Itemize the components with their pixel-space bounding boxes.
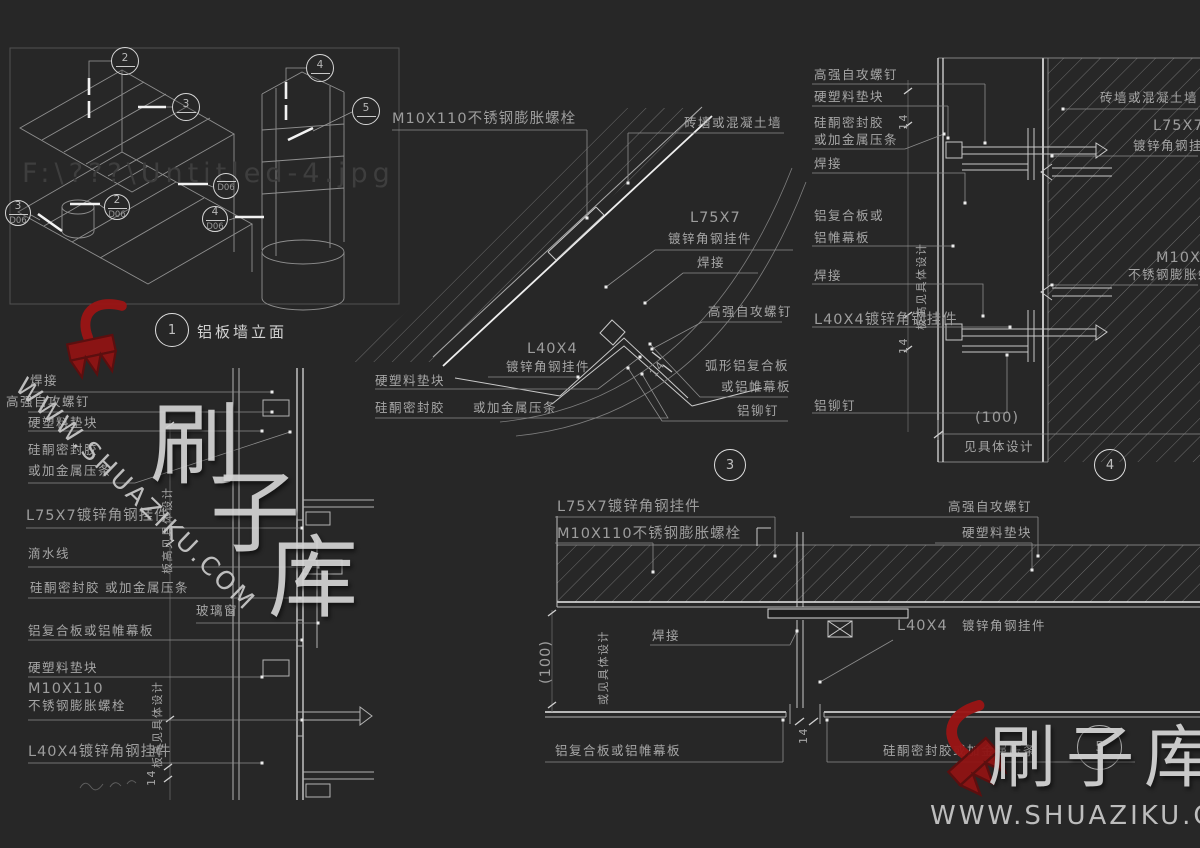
cad-label: 硅酮密封胶 bbox=[375, 401, 445, 415]
cad-label: L40X4 bbox=[897, 618, 948, 635]
cad-label: 硬塑料垫块 bbox=[28, 661, 98, 675]
cad-label: 焊接 bbox=[652, 629, 680, 643]
bubble-sheet: D06 bbox=[217, 184, 234, 193]
cad-label: 硬塑料垫块 bbox=[814, 90, 884, 104]
cad-label: 铝复合板或 bbox=[814, 209, 884, 223]
cad-label: 高强自攻螺钉 bbox=[948, 500, 1032, 514]
watermark-site-text: WWW.SHUAZIKU.COM bbox=[930, 801, 1200, 831]
ghost-filepath-text: F:\???\Untitled-4.jpg bbox=[22, 158, 395, 189]
detail-number: 4 bbox=[1106, 458, 1114, 473]
bubble-number: 5 bbox=[357, 103, 376, 117]
cad-label: L40X4 bbox=[527, 341, 578, 358]
bubble-number bbox=[217, 179, 236, 182]
detail-bubble-3-d06: 3D06 bbox=[5, 200, 31, 226]
detail-number-circle-3: 3 bbox=[714, 449, 746, 481]
cad-label: 或加金属压条 bbox=[814, 133, 898, 147]
cad-label: M10X110不锈钢膨胀螺栓 bbox=[392, 111, 576, 128]
bubble-number: 4 bbox=[311, 60, 330, 74]
cad-dim-text: (100) bbox=[975, 410, 1019, 427]
wall-hatch bbox=[352, 108, 708, 362]
elevation-number-circle: 1 bbox=[155, 313, 189, 347]
cad-label: L75X7 bbox=[690, 210, 741, 227]
cad-label: 见具体设计 bbox=[964, 440, 1034, 454]
bubble-number: 3 bbox=[9, 201, 28, 215]
leader-dots bbox=[261, 108, 1065, 765]
cad-label: 或加金属压条 bbox=[473, 401, 557, 415]
cad-dim-text: 或见具体设计 bbox=[598, 630, 611, 705]
cad-label: 镀锌角钢挂件 bbox=[1133, 139, 1200, 153]
cad-label: 高强自攻螺钉 bbox=[708, 305, 792, 319]
detail-number: 3 bbox=[726, 458, 734, 473]
cad-label: L75X7 bbox=[1153, 118, 1200, 135]
cad-label: 焊接 bbox=[814, 157, 842, 171]
detail-bubble-4: 4 bbox=[306, 54, 334, 82]
cad-label: 铝帷幕板 bbox=[814, 231, 870, 245]
cad-label: M10X110不锈钢膨胀螺栓 bbox=[557, 526, 741, 543]
cad-label: L40X4镀锌角钢挂件 bbox=[814, 312, 958, 329]
bubble-sheet: D06 bbox=[108, 211, 125, 220]
hanger-plate bbox=[768, 609, 908, 618]
cad-label: 硅酮密封胶 bbox=[30, 581, 100, 595]
cad-dim-text: 14 bbox=[798, 727, 811, 744]
cad-label: 高强自攻螺钉 bbox=[814, 68, 898, 82]
cad-dim-text: 板高见具体设计 bbox=[152, 681, 165, 769]
watermark-brand-text: 刷子库 bbox=[988, 702, 1200, 801]
cad-label: 镀锌角钢挂件 bbox=[506, 360, 590, 374]
cad-label: M10X110 bbox=[1156, 250, 1200, 267]
cad-label: 镀锌角钢挂件 bbox=[962, 619, 1046, 633]
cad-dim-text: 14 bbox=[898, 113, 911, 130]
bubble-sheet: D06 bbox=[206, 223, 223, 232]
cad-dim-text: 14 bbox=[146, 769, 159, 786]
cad-label: 不锈钢膨胀螺栓 bbox=[1128, 268, 1200, 282]
cad-label: 弧形铝复合板 bbox=[705, 359, 789, 373]
cad-label: 焊接 bbox=[814, 269, 842, 283]
detail-bubble-4-d06: 4D06 bbox=[202, 206, 228, 232]
cad-label: M10X110 bbox=[28, 681, 104, 698]
cad-label: 或加金属压条 bbox=[105, 581, 189, 595]
cad-label: 或铝帷幕板 bbox=[721, 380, 791, 394]
cad-label: L75X7镀锌角钢挂件 bbox=[557, 499, 701, 516]
cad-label: 硬塑料垫块 bbox=[375, 374, 445, 388]
elevation-number: 1 bbox=[168, 323, 176, 338]
elevation-title: 铝板墙立面 bbox=[197, 321, 287, 342]
detail-bubble-5: 5 bbox=[352, 97, 380, 125]
detail-bubble-3: 3 bbox=[172, 93, 200, 121]
panel-face-line bbox=[938, 58, 943, 462]
cad-dim-text: (100) bbox=[538, 640, 555, 684]
signature-scribble bbox=[80, 781, 136, 790]
bubble-number: 2 bbox=[116, 53, 135, 67]
detail-number-circle-4: 4 bbox=[1094, 449, 1126, 481]
detail-bubble-2: 2 bbox=[111, 47, 139, 75]
cad-label: 滴水线 bbox=[28, 547, 70, 561]
bubble-number: 4 bbox=[206, 207, 225, 221]
cad-dim-text: 板高见具体设计 bbox=[916, 243, 929, 331]
bubble-sheet: D06 bbox=[9, 217, 26, 226]
bubble-number: 2 bbox=[108, 195, 127, 209]
watermark-brand-char: 库 bbox=[268, 505, 358, 635]
cad-dim-text: 14 bbox=[898, 337, 911, 354]
detail-bubble-d06: D06 bbox=[213, 173, 239, 199]
cad-label: 硅酮密封胶 bbox=[814, 116, 884, 130]
cad-label: 铝铆钉 bbox=[814, 399, 856, 413]
detail-bubble-2-d06: 2D06 bbox=[104, 194, 130, 220]
cad-label: 不锈钢膨胀螺栓 bbox=[28, 699, 126, 713]
cad-label: 铝复合板或铝帷幕板 bbox=[555, 744, 681, 758]
cad-label: 砖墙或混凝土墙 bbox=[684, 116, 782, 130]
cad-label: 焊接 bbox=[697, 256, 725, 270]
cad-sheet: F:\???\Untitled-4.jpg 2 3 4 5 3D06 2D06 … bbox=[0, 0, 1200, 848]
cad-label: 硬塑料垫块 bbox=[962, 526, 1032, 540]
cad-label: 铝复合板或铝帷幕板 bbox=[28, 624, 154, 638]
bubble-number: 3 bbox=[177, 99, 196, 113]
cad-label: 铝铆钉 bbox=[737, 404, 779, 418]
cad-label: 镀锌角钢挂件 bbox=[668, 232, 752, 246]
cad-label: 砖墙或混凝土墙 bbox=[1100, 91, 1198, 105]
